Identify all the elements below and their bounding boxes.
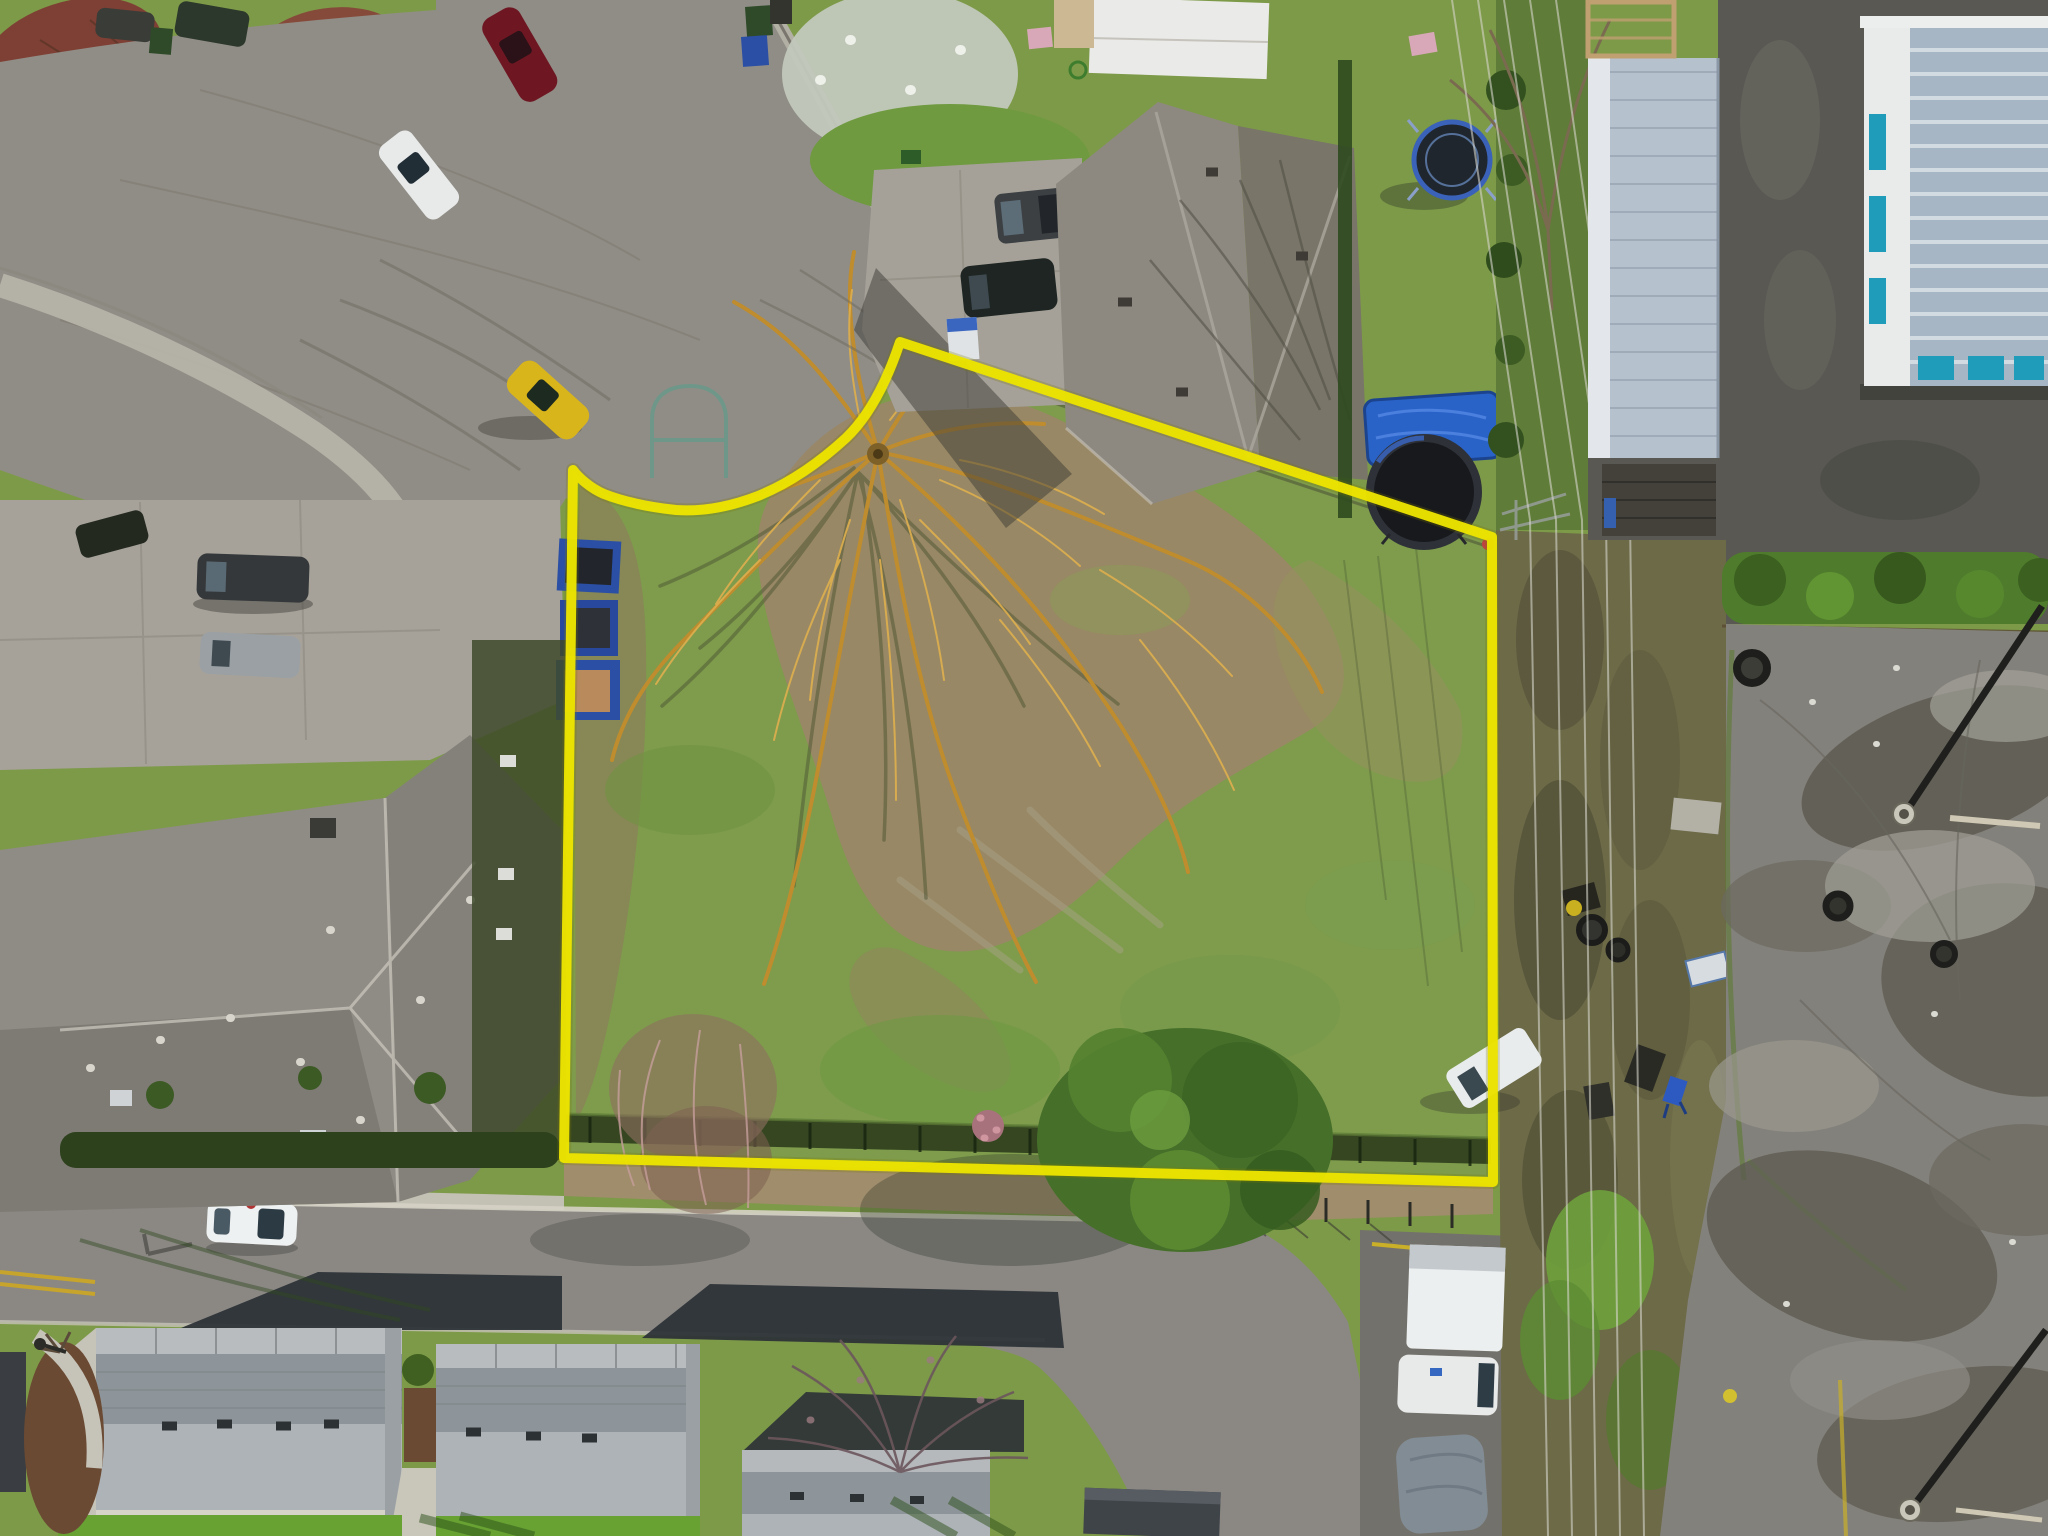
townhouse-b-ridge-band <box>436 1344 700 1368</box>
green-tree-highlight <box>1130 1090 1190 1150</box>
backyard-hedge-fence <box>1338 60 1352 518</box>
apartment-skylight-2 <box>110 1090 132 1106</box>
west-bush-1 <box>146 1081 174 1109</box>
black-suv-glass <box>969 274 990 310</box>
blue-building-window-1 <box>1869 114 1886 170</box>
light-pole-2-lamp-core <box>1905 1505 1915 1515</box>
blue-building-window-2 <box>1869 196 1886 252</box>
junk-yellow-item <box>1566 900 1582 916</box>
parking-worn-1 <box>1825 830 2035 942</box>
golden-tree-trunk-core <box>873 449 883 459</box>
west-hedge-row <box>60 1132 560 1168</box>
concrete-pad-debris <box>1670 798 1721 835</box>
townhouse-a-upper-slope <box>96 1354 402 1424</box>
blue-building-fascia <box>1860 16 2048 28</box>
tire-2 <box>1826 894 1850 918</box>
nw-suv-glass <box>206 561 227 592</box>
apartment-ac-unit-1 <box>500 755 516 767</box>
west-bush-2 <box>298 1066 322 1090</box>
shed-yard-stain <box>1820 440 1980 520</box>
blue-building-window-3 <box>1869 278 1886 324</box>
lot-grass-mottle-1 <box>605 745 775 835</box>
townhouse-c-upper-slope <box>742 1472 990 1514</box>
white-van-windshield <box>1477 1363 1495 1408</box>
parking-hedge-blob-2 <box>1806 572 1854 620</box>
townhouse-a-ridge-band <box>96 1328 402 1354</box>
box-truck-cab <box>1409 1244 1506 1271</box>
aerial-photo: Aerial drone photo of vacant corner lot … <box>0 0 2048 1536</box>
blue-building-roof <box>1910 26 2048 386</box>
townhouse-a-lower-slope <box>96 1424 402 1512</box>
parking-hedge-blob-3 <box>1874 552 1926 604</box>
townhouse-a-eave <box>96 1510 402 1515</box>
front-lawn-a <box>58 1515 402 1536</box>
tarp-covered-car <box>1395 1433 1489 1535</box>
corridor-scrub-2 <box>1600 650 1680 870</box>
long-shed-white-band <box>1588 58 1610 458</box>
top-left-car-2 <box>95 7 156 43</box>
neighbor-dark-roof-west <box>0 1352 26 1492</box>
lot-grass-mottle-4 <box>1305 860 1475 950</box>
light-pole-1-lamp-core <box>1899 809 1909 819</box>
apartment-chimney <box>310 818 336 838</box>
apartment-east-scrub-band <box>472 640 566 1160</box>
parking-worn-4 <box>1790 1340 1970 1420</box>
corridor-hedge-4 <box>1495 335 1525 365</box>
townhouse-b-lower-slope <box>436 1432 700 1516</box>
townhouse-gap-mulch <box>404 1388 436 1462</box>
blue-building-teal-roof-1 <box>1918 356 1954 380</box>
lot-grass-mottle-2 <box>820 1015 1060 1125</box>
townhouse-a-east-wall <box>385 1328 401 1515</box>
townhouse-b-upper-slope <box>436 1368 700 1432</box>
curbside-bin-green <box>745 5 773 37</box>
shed-deck-blue-tarp <box>1604 498 1616 528</box>
townhouse-gap-bush <box>402 1354 434 1386</box>
townhouse-b-shadow <box>642 1284 1064 1348</box>
mulch-streetlight-head <box>34 1338 46 1350</box>
junk-tire-a <box>1579 917 1605 943</box>
utility-box-green <box>901 150 921 164</box>
recycle-bin-blue-lid <box>947 317 978 332</box>
nw-silver-car-glass <box>211 640 230 667</box>
townhouse-b-east-wall <box>686 1344 700 1536</box>
tire-1 <box>1737 653 1767 683</box>
blue-building-teal-roof-2 <box>1968 356 2004 380</box>
blue-building-teal-roof-3 <box>2014 356 2044 380</box>
curbside-bin-dark <box>770 0 792 24</box>
apartment-ac-unit-2 <box>498 868 514 880</box>
blue-building-shadow <box>1860 384 2048 400</box>
curbside-bin-blue <box>741 35 769 67</box>
aerial-photo-container: Aerial drone photo of vacant corner lot … <box>0 0 2048 1536</box>
west-bush-3 <box>414 1072 446 1104</box>
pink-tree-shadow <box>530 1214 750 1266</box>
parking-hedge-blob-4 <box>1956 570 2004 618</box>
lot-grass-mottle-5 <box>1050 565 1190 635</box>
apartment-roof-south-slope <box>0 1008 398 1212</box>
parking-yellow-item <box>1723 1389 1737 1403</box>
white-van-blue-decal <box>1430 1368 1442 1376</box>
green-tree-blob-3 <box>1130 1150 1230 1250</box>
green-tree-blob-2 <box>1182 1042 1298 1158</box>
white-house-porch <box>1054 0 1094 48</box>
corridor-green-patch-2 <box>1520 1280 1600 1400</box>
apartment-ac-unit-3 <box>496 928 512 940</box>
shed-yard-wear-2 <box>1764 250 1836 390</box>
corridor-scrub-1 <box>1516 550 1604 730</box>
top-left-green-bin <box>149 27 173 55</box>
shed-yard-wear-1 <box>1740 40 1820 200</box>
parking-hedge-blob-1 <box>1734 554 1786 606</box>
pickup-truck-glass <box>1000 200 1023 236</box>
green-tree-blob-4 <box>1240 1150 1320 1230</box>
tire-3 <box>1933 943 1955 965</box>
pink-playhouse <box>1027 27 1053 49</box>
